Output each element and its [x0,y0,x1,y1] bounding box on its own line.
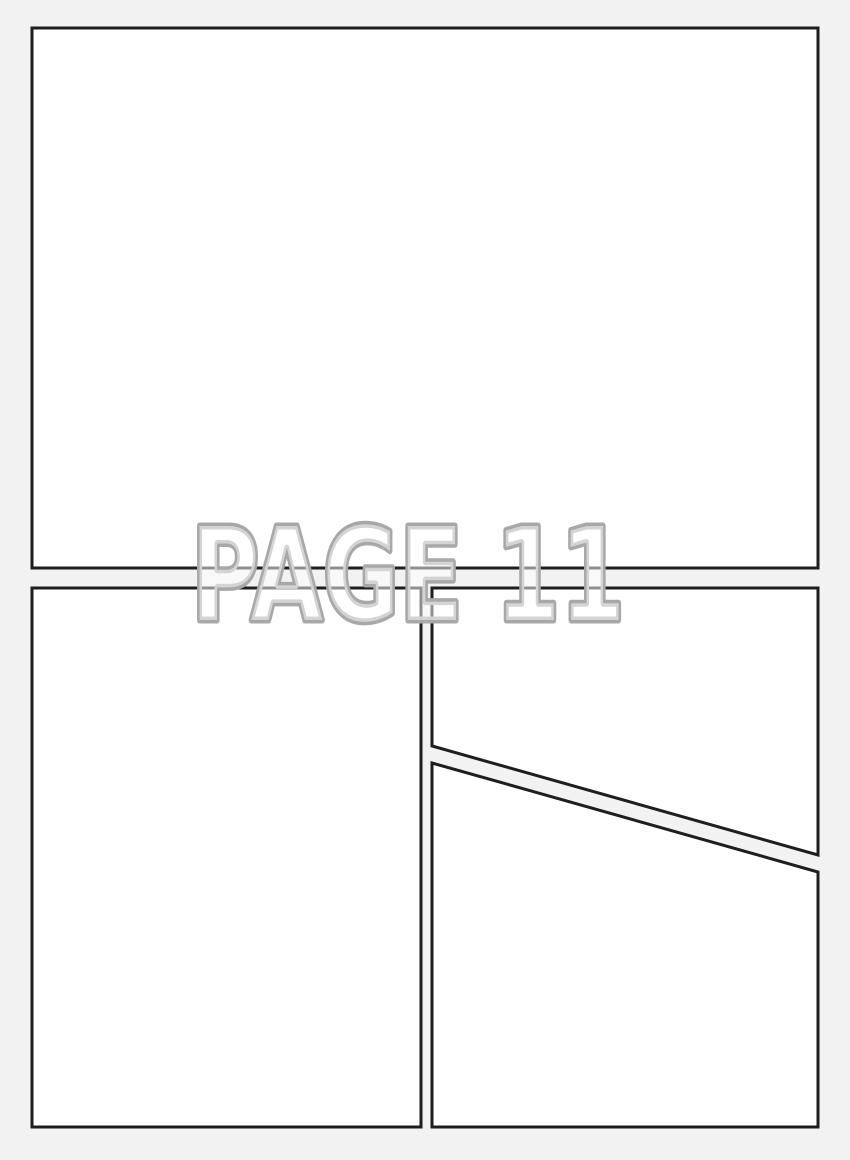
comic-page-template: PAGE 11 [0,0,850,1160]
panel-bottom-left [32,588,421,1127]
page-number-label: PAGE 11 [191,501,625,651]
panel-top [32,28,818,568]
comic-page-canvas: PAGE 11 [0,0,850,1160]
